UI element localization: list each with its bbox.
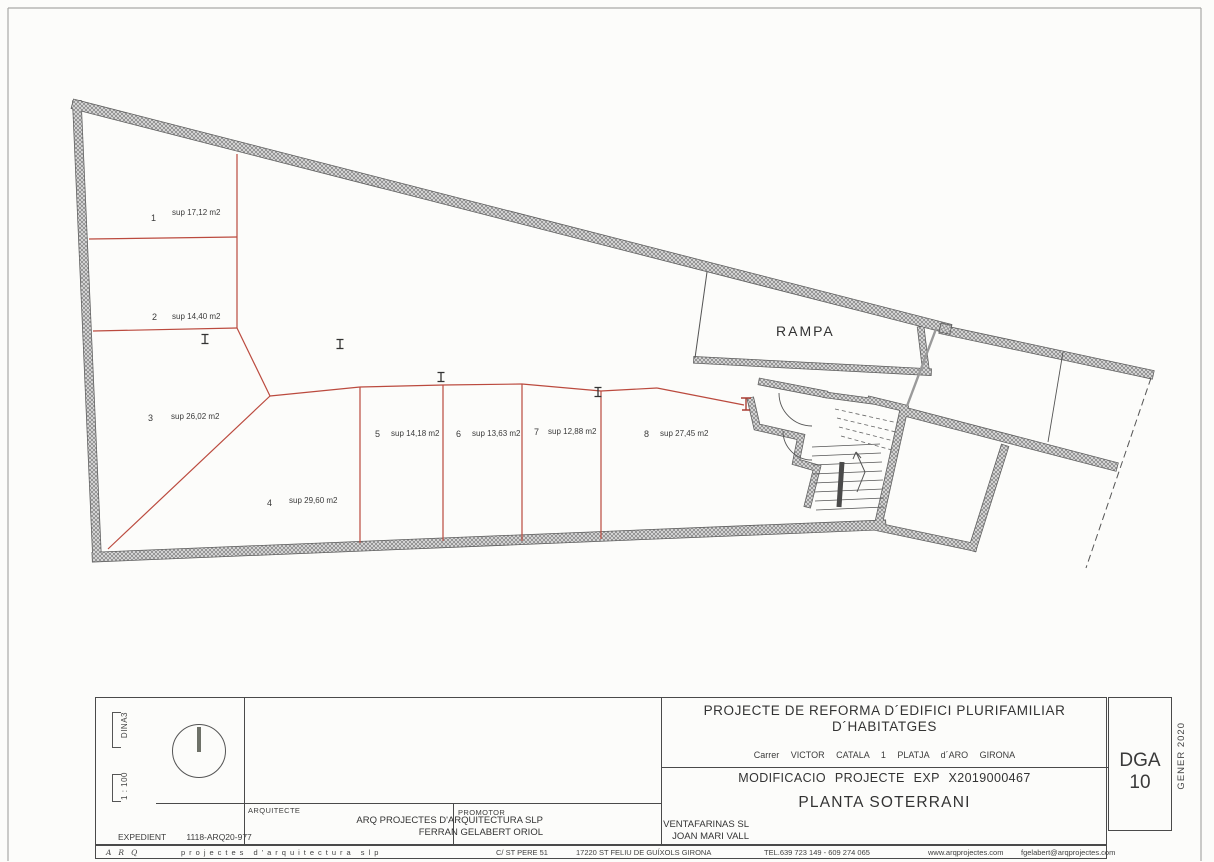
space-1-area: sup 17,12 m2 bbox=[172, 208, 221, 217]
sheet-date: GENER 2020 bbox=[1176, 722, 1187, 790]
space-7-area: sup 12,88 m2 bbox=[548, 427, 597, 436]
project-address: Carrer VICTOR CATALA 1 PLATJA d´ARO GIRO… bbox=[661, 750, 1108, 760]
sheet-code-box: DGA 10 bbox=[1108, 697, 1172, 831]
project-title-line1: PROJECTE DE REFORMA D´EDIFICI PLURIFAMIL… bbox=[661, 703, 1108, 718]
promoter-company: VENTAFARINAS SL bbox=[476, 819, 749, 831]
titleblock-divider bbox=[661, 767, 1108, 768]
footer-city: 17220 ST FELIU DE GUÍXOLS GIRONA bbox=[576, 848, 711, 857]
space-8-area: sup 27,45 m2 bbox=[660, 429, 709, 438]
wall-joint-notch bbox=[939, 323, 952, 334]
project-title-line2: D´HABITATGES bbox=[661, 719, 1108, 734]
footer-bar: ARQ projectes d'arquitectura slp C/ ST P… bbox=[95, 845, 1107, 859]
footer-website: www.arqprojectes.com bbox=[928, 848, 1003, 857]
footer-brand-arq: ARQ bbox=[106, 848, 144, 857]
titleblock-divider bbox=[244, 698, 245, 846]
drawing-sheet: RAMPA 1 sup 17,12 m2 2 sup 14,40 m2 3 su… bbox=[0, 0, 1214, 862]
thin-lines bbox=[695, 272, 1063, 442]
space-3-area: sup 26,02 m2 bbox=[171, 412, 220, 421]
space-3-number: 3 bbox=[148, 413, 153, 423]
expedient-label: EXPEDIENT bbox=[118, 832, 166, 842]
space-6-number: 6 bbox=[456, 429, 461, 439]
expedient-row: EXPEDIENT 1118-ARQ20-977 bbox=[118, 832, 252, 842]
space-7-number: 7 bbox=[534, 427, 539, 437]
stair-upper-flight-dashed bbox=[835, 409, 898, 450]
promoter-names: VENTAFARINAS SL JOAN MARI VALL bbox=[476, 819, 749, 843]
space-2-area: sup 14,40 m2 bbox=[172, 312, 221, 321]
space-4-area: sup 29,60 m2 bbox=[289, 496, 338, 505]
titleblock-divider bbox=[156, 803, 661, 804]
space-4-number: 4 bbox=[267, 498, 272, 508]
title-block: DINA3 1 : 100 EXPEDIENT 1118-ARQ20-977 A… bbox=[95, 697, 1107, 845]
space-5-area: sup 14,18 m2 bbox=[391, 429, 440, 438]
paper-size-label: DINA3 bbox=[120, 712, 129, 738]
space-labels: 1 sup 17,12 m2 2 sup 14,40 m2 3 sup 26,0… bbox=[148, 208, 709, 508]
promoter-name: JOAN MARI VALL bbox=[476, 831, 749, 843]
space-2-number: 2 bbox=[152, 312, 157, 322]
space-5-number: 5 bbox=[375, 429, 380, 439]
architect-section-label: ARQUITECTE bbox=[248, 806, 300, 815]
footer-street: C/ ST PERE 51 bbox=[496, 848, 548, 857]
column-markers bbox=[202, 335, 602, 397]
stair-rail bbox=[839, 462, 842, 507]
footer-brand-text: projectes d'arquitectura slp bbox=[181, 848, 382, 857]
space-8-number: 8 bbox=[644, 429, 649, 439]
north-needle-icon bbox=[197, 727, 201, 752]
footer-email: fgelabert@arqprojectes.com bbox=[1021, 848, 1115, 857]
scale-label: 1 : 100 bbox=[120, 772, 129, 800]
promoter-section-label: PROMOTOR bbox=[458, 808, 505, 817]
sheet-code: DGA 10 bbox=[1109, 750, 1171, 794]
ramp-label: RAMPA bbox=[776, 323, 835, 339]
north-indicator bbox=[172, 724, 226, 778]
project-modification: MODIFICACIO PROJECTE EXP X2019000467 bbox=[661, 771, 1108, 785]
space-6-area: sup 13,63 m2 bbox=[472, 429, 521, 438]
stair-treads bbox=[812, 444, 884, 510]
expedient-value: 1118-ARQ20-977 bbox=[186, 832, 251, 842]
footer-phone: TEL.639 723 149 - 609 274 065 bbox=[764, 848, 870, 857]
space-1-number: 1 bbox=[151, 213, 156, 223]
sheet-title: PLANTA SOTERRANI bbox=[661, 794, 1108, 812]
boundary-dashed-line bbox=[1086, 378, 1151, 568]
